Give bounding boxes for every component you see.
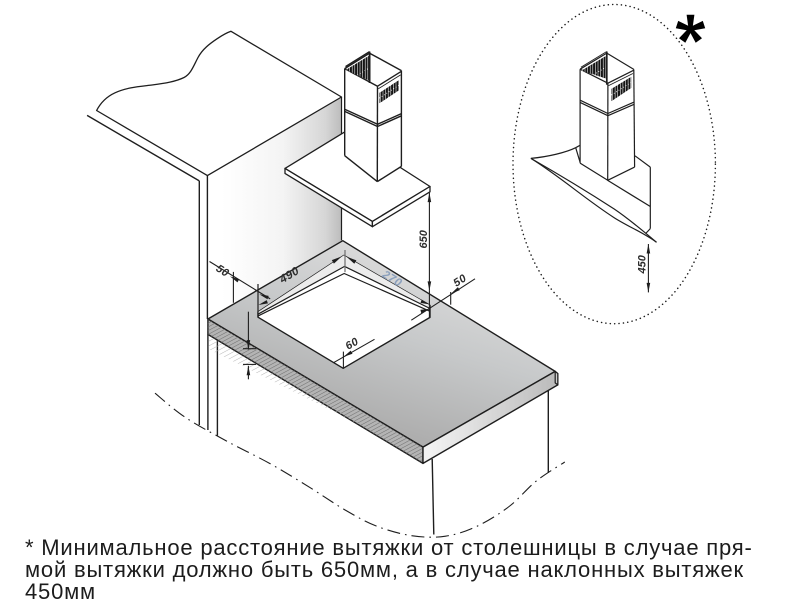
svg-text:650: 650 — [418, 229, 430, 248]
svg-text:450: 450 — [637, 254, 649, 274]
